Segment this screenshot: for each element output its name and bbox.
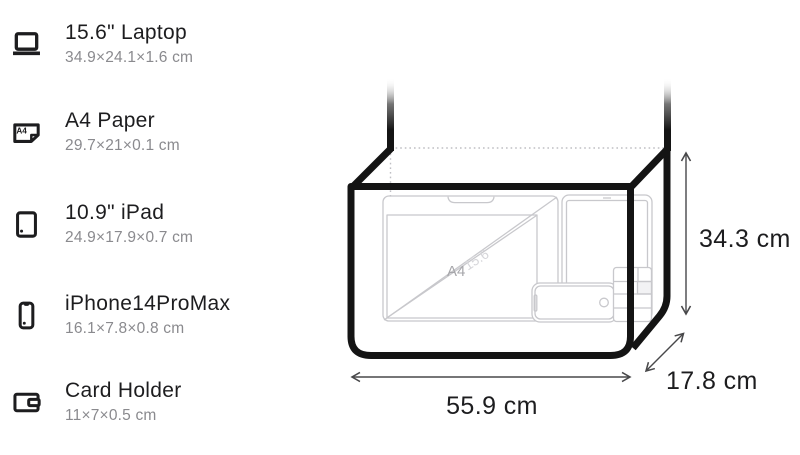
ghost-laptop-notch [448,197,494,203]
bag-top-left-diagonal [352,149,391,188]
ghost-a4-label: A4 [447,263,465,280]
ghost-card-tab [638,282,652,295]
depth-label: 17.8 cm [666,367,758,395]
size-comparison-diagram: 15.6" Laptop 34.9×24.1×1.6 cm A4 A4 Pape… [0,0,800,455]
width-label: 55.9 cm [446,392,538,420]
depth-arrow [646,334,684,372]
ghost-laptop-size-label: 15.6 [461,246,491,273]
interior-items: 15.6 A4 [383,195,652,322]
bag-strap-right [664,78,671,151]
bag-top-right-diagonal [631,150,667,188]
bag-dimension-diagram: 15.6 A4 34.3 c [0,0,800,455]
ghost-iphone [532,283,617,322]
height-label: 34.3 cm [699,225,791,253]
bag-strap-left [387,78,394,151]
